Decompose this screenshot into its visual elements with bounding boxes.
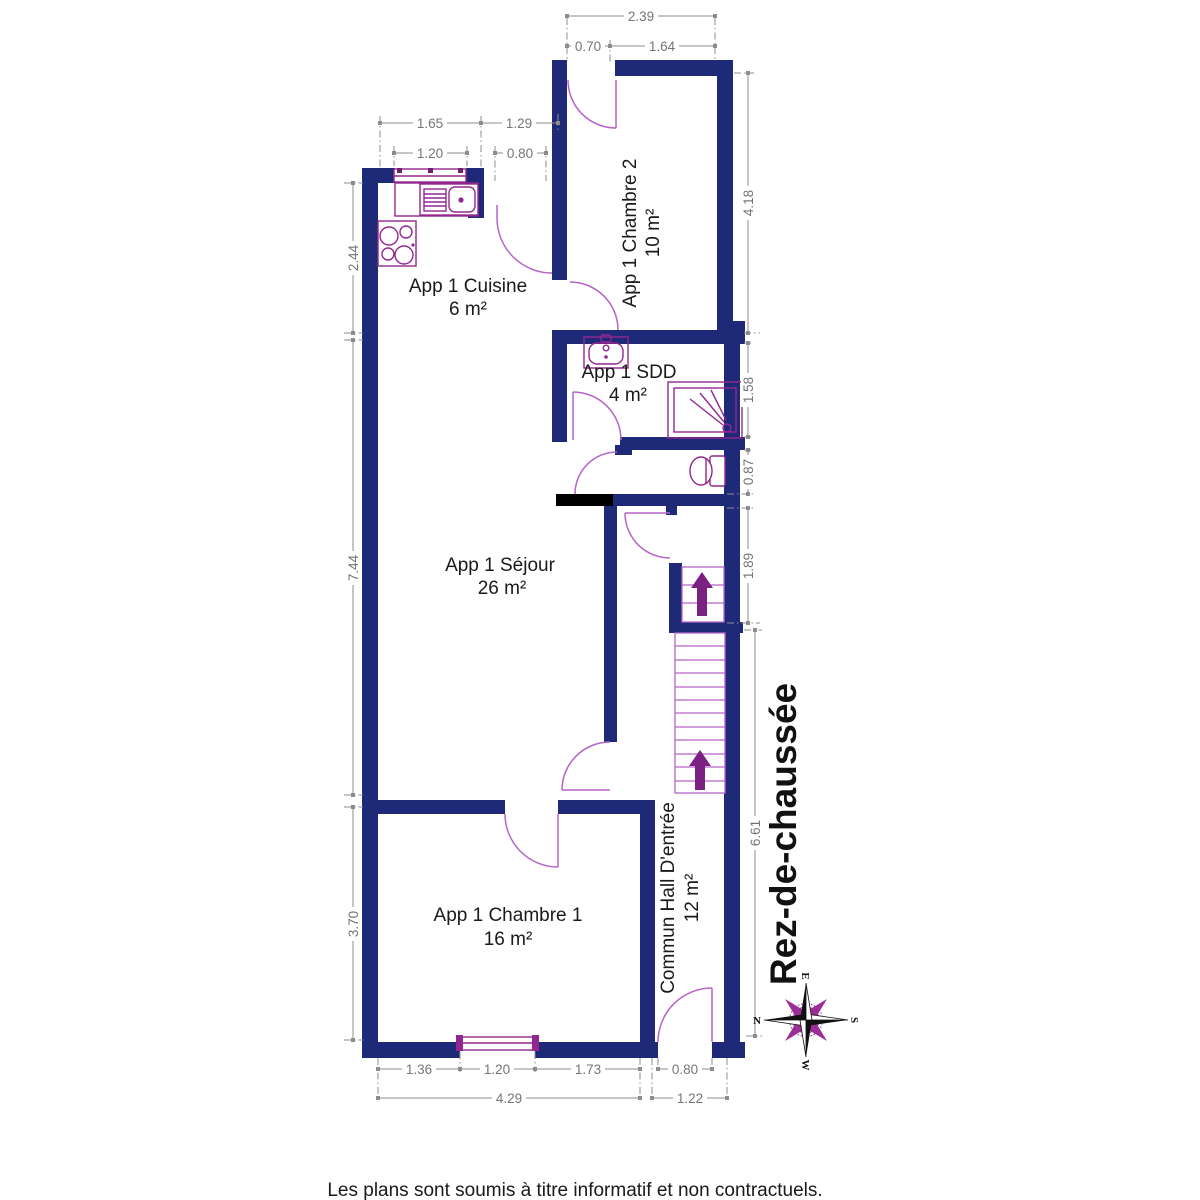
- dim-hall-total: 1.22: [677, 1091, 703, 1106]
- door-hall-top: [625, 513, 670, 558]
- dim-bottom-right: 1.73: [575, 1062, 601, 1077]
- dim-bottom-left: 1.36: [406, 1062, 432, 1077]
- dim-kitchen-window: 1.20: [417, 146, 443, 161]
- wall-left: [362, 168, 378, 1058]
- door-wc-corridor: [575, 452, 617, 494]
- dim-right-stairs: 1.89: [741, 553, 756, 579]
- wall-chambre1-top-left: [362, 800, 505, 814]
- wall-sdd-left: [552, 330, 567, 442]
- wall-sejour-right: [604, 506, 617, 742]
- room-label-chambre2: App 1 Chambre 2: [620, 159, 641, 308]
- room-area-cuisine: 6 m²: [449, 299, 487, 320]
- compass-rose: N S E W: [753, 972, 860, 1070]
- dim-bottom-window: 1.20: [484, 1062, 510, 1077]
- wall-chambre2-top: [615, 60, 733, 76]
- wall-chambre2-left: [552, 60, 567, 280]
- dim-kitchen-left: 1.65: [417, 116, 443, 131]
- floor-plan-page: 2.39 0.70 1.64 1.65 1.29 1.20 0.80 2.44 …: [0, 0, 1200, 1200]
- wall-kitchen-top-left: [362, 168, 395, 183]
- kitchen-window: [394, 168, 466, 182]
- wall-black-segment: [556, 494, 613, 506]
- wall-bottom-left: [362, 1042, 460, 1058]
- toilet: [690, 456, 725, 486]
- dim-top-door: 0.70: [575, 39, 601, 54]
- room-area-chambre1: 16 m²: [484, 929, 533, 950]
- dim-top-total: 2.39: [628, 9, 654, 24]
- room-label-sdd: App 1 SDD: [581, 362, 676, 383]
- dim-hall-door: 0.80: [672, 1062, 698, 1077]
- room-label-hall: Commun Hall D'entrée: [658, 802, 679, 994]
- wall-chambre1-hall-divider: [640, 814, 655, 1042]
- compass-east-label: E: [799, 972, 811, 979]
- compass-north-label: N: [753, 1015, 761, 1027]
- wall-chambre2-right: [717, 60, 733, 333]
- cooktop: [378, 221, 416, 266]
- dim-left-kitchen: 2.44: [346, 244, 361, 271]
- room-labels: App 1 Cuisine 6 m² App 1 Chambre 2 10 m²…: [409, 159, 703, 994]
- door-entry: [658, 988, 712, 1042]
- dim-top-window-side: 1.64: [649, 39, 676, 54]
- door-sejour-hall: [562, 742, 610, 790]
- disclaimer-text: Les plans sont soumis à titre informatif…: [327, 1180, 822, 1200]
- door-chambre1: [505, 814, 558, 867]
- room-area-hall: 12 m²: [682, 874, 703, 923]
- dim-left-chambre1: 3.70: [346, 911, 361, 937]
- dim-right-hall: 6.61: [748, 820, 763, 846]
- wall-right: [724, 333, 740, 1058]
- kitchen-sink: [395, 183, 478, 216]
- dim-right-chambre2: 4.18: [741, 190, 756, 216]
- compass-south-label: S: [848, 1017, 860, 1023]
- room-area-sdd: 4 m²: [609, 385, 647, 406]
- compass-west-label: W: [799, 1060, 811, 1071]
- dim-bottom-total: 4.29: [496, 1091, 522, 1106]
- room-area-sejour: 26 m²: [478, 578, 527, 599]
- wall-wc-bottom: [613, 494, 726, 506]
- wall-bottom-middle: [535, 1042, 658, 1058]
- dim-kitchen-door: 0.80: [507, 146, 533, 161]
- dim-right-wc: 0.87: [741, 459, 756, 485]
- wall-stair-vertical: [669, 563, 682, 622]
- dim-left-sejour: 7.44: [346, 554, 361, 581]
- wall-sdd-top: [552, 330, 745, 344]
- wall-bottom-right: [712, 1042, 745, 1058]
- wall-chambre1-top-right: [558, 800, 655, 814]
- dim-right-sdd: 1.58: [741, 377, 756, 403]
- dim-kitchen-right: 1.29: [506, 116, 532, 131]
- door-kitchen: [497, 205, 552, 273]
- room-label-cuisine: App 1 Cuisine: [409, 276, 527, 297]
- room-label-chambre1: App 1 Chambre 1: [434, 905, 583, 926]
- wall-kitchen-top-right: [466, 168, 484, 183]
- door-chambre2-top: [568, 80, 616, 128]
- stairs-upper-flight: [682, 567, 724, 622]
- stairs: [675, 567, 725, 793]
- wall-sdd-bottom-stub: [615, 445, 632, 455]
- chambre1-window: [456, 1035, 539, 1051]
- door-chambre2-entry: [570, 282, 618, 330]
- room-area-chambre2: 10 m²: [643, 209, 664, 258]
- room-label-sejour: App 1 Séjour: [445, 555, 556, 576]
- floor-title: Rez-de-chaussée: [763, 683, 804, 985]
- stairs-lower-flight: [675, 633, 725, 793]
- floor-plan-canvas: 2.39 0.70 1.64 1.65 1.29 1.20 0.80 2.44 …: [0, 0, 1200, 1200]
